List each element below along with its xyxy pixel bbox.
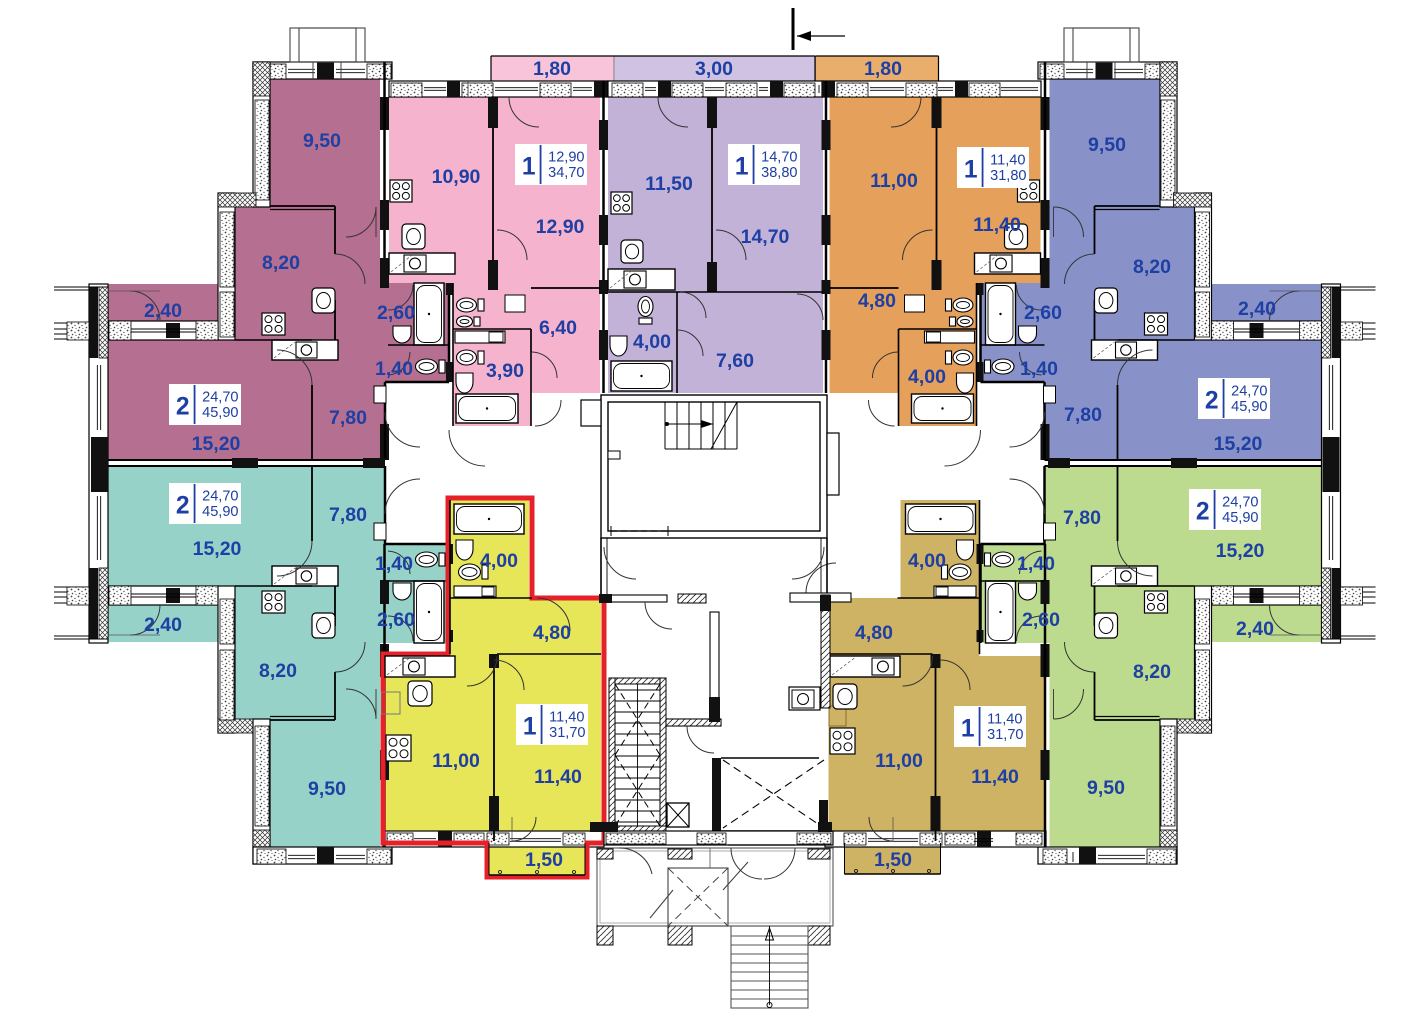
svg-text:11,00: 11,00 [875,750,923,772]
svg-text:31,70: 31,70 [987,727,1023,743]
svg-text:45,90: 45,90 [1222,510,1258,526]
svg-text:9,50: 9,50 [308,778,346,800]
svg-text:1,50: 1,50 [525,849,563,871]
svg-text:2: 2 [1205,387,1219,414]
svg-text:14,70: 14,70 [741,226,790,248]
svg-text:7,80: 7,80 [1063,507,1101,529]
svg-text:9,50: 9,50 [303,130,341,152]
svg-text:3,00: 3,00 [695,58,733,80]
svg-text:11,40: 11,40 [990,153,1025,169]
svg-text:1,80: 1,80 [533,58,571,80]
svg-text:4,00: 4,00 [480,550,518,572]
svg-text:1,40: 1,40 [375,553,413,575]
svg-text:8,20: 8,20 [262,252,300,274]
svg-text:2,60: 2,60 [1024,302,1062,324]
svg-text:7,80: 7,80 [329,407,367,429]
svg-text:1,40: 1,40 [375,358,413,380]
svg-text:2: 2 [176,393,190,420]
svg-text:4,80: 4,80 [855,622,893,644]
svg-text:24,70: 24,70 [1231,384,1267,400]
svg-text:11,40: 11,40 [987,712,1022,728]
svg-text:15,20: 15,20 [1216,540,1265,562]
svg-text:15,20: 15,20 [192,433,241,455]
svg-text:11,40: 11,40 [973,214,1021,236]
svg-text:1: 1 [964,156,978,183]
svg-text:2,60: 2,60 [377,302,415,324]
svg-text:11,00: 11,00 [870,170,918,192]
svg-text:2,60: 2,60 [1022,609,1060,631]
svg-text:2,40: 2,40 [144,300,182,322]
svg-text:10,90: 10,90 [432,166,481,188]
svg-text:1,50: 1,50 [874,849,912,871]
svg-text:15,20: 15,20 [1214,433,1263,455]
svg-text:8,20: 8,20 [259,660,297,682]
svg-text:11,50: 11,50 [645,173,693,195]
svg-text:1: 1 [523,713,537,740]
svg-text:11,40: 11,40 [534,766,582,788]
svg-text:45,90: 45,90 [1231,399,1267,415]
svg-text:1,40: 1,40 [1020,358,1058,380]
svg-text:12,90: 12,90 [536,216,585,238]
svg-text:8,20: 8,20 [1133,661,1171,683]
svg-text:8,20: 8,20 [1133,256,1171,278]
svg-text:11,40: 11,40 [549,710,584,726]
svg-text:1: 1 [735,153,749,180]
svg-text:9,50: 9,50 [1087,777,1125,799]
svg-text:11,40: 11,40 [971,766,1019,788]
svg-text:14,70: 14,70 [761,150,797,166]
svg-text:2: 2 [176,492,190,519]
svg-text:38,80: 38,80 [761,165,797,181]
svg-text:15,20: 15,20 [193,538,242,560]
svg-text:7,80: 7,80 [329,504,367,526]
svg-text:6,40: 6,40 [539,317,577,339]
svg-text:2,40: 2,40 [1238,298,1276,320]
svg-text:34,70: 34,70 [548,165,584,181]
svg-text:2: 2 [1196,498,1210,525]
svg-text:12,90: 12,90 [548,150,584,166]
svg-text:7,60: 7,60 [716,350,754,372]
svg-text:4,80: 4,80 [533,622,571,644]
svg-text:3,90: 3,90 [486,360,524,382]
svg-text:4,00: 4,00 [633,331,671,353]
svg-text:4,80: 4,80 [858,290,896,312]
svg-text:11,00: 11,00 [432,750,480,772]
svg-text:24,70: 24,70 [202,489,238,505]
svg-text:2,40: 2,40 [144,614,182,636]
svg-text:2,40: 2,40 [1236,618,1274,640]
svg-text:4,00: 4,00 [908,550,946,572]
svg-text:1: 1 [961,715,975,742]
svg-text:4,00: 4,00 [908,366,946,388]
svg-text:2,60: 2,60 [377,609,415,631]
svg-text:9,50: 9,50 [1088,134,1126,156]
svg-text:1,80: 1,80 [864,58,902,80]
svg-text:1: 1 [522,153,536,180]
svg-text:1,40: 1,40 [1017,553,1055,575]
svg-text:45,90: 45,90 [202,405,238,421]
svg-text:45,90: 45,90 [202,504,238,520]
svg-text:24,70: 24,70 [202,390,238,406]
svg-text:31,70: 31,70 [549,725,585,741]
svg-text:7,80: 7,80 [1064,404,1102,426]
svg-text:31,80: 31,80 [990,168,1026,184]
svg-text:24,70: 24,70 [1222,495,1258,511]
